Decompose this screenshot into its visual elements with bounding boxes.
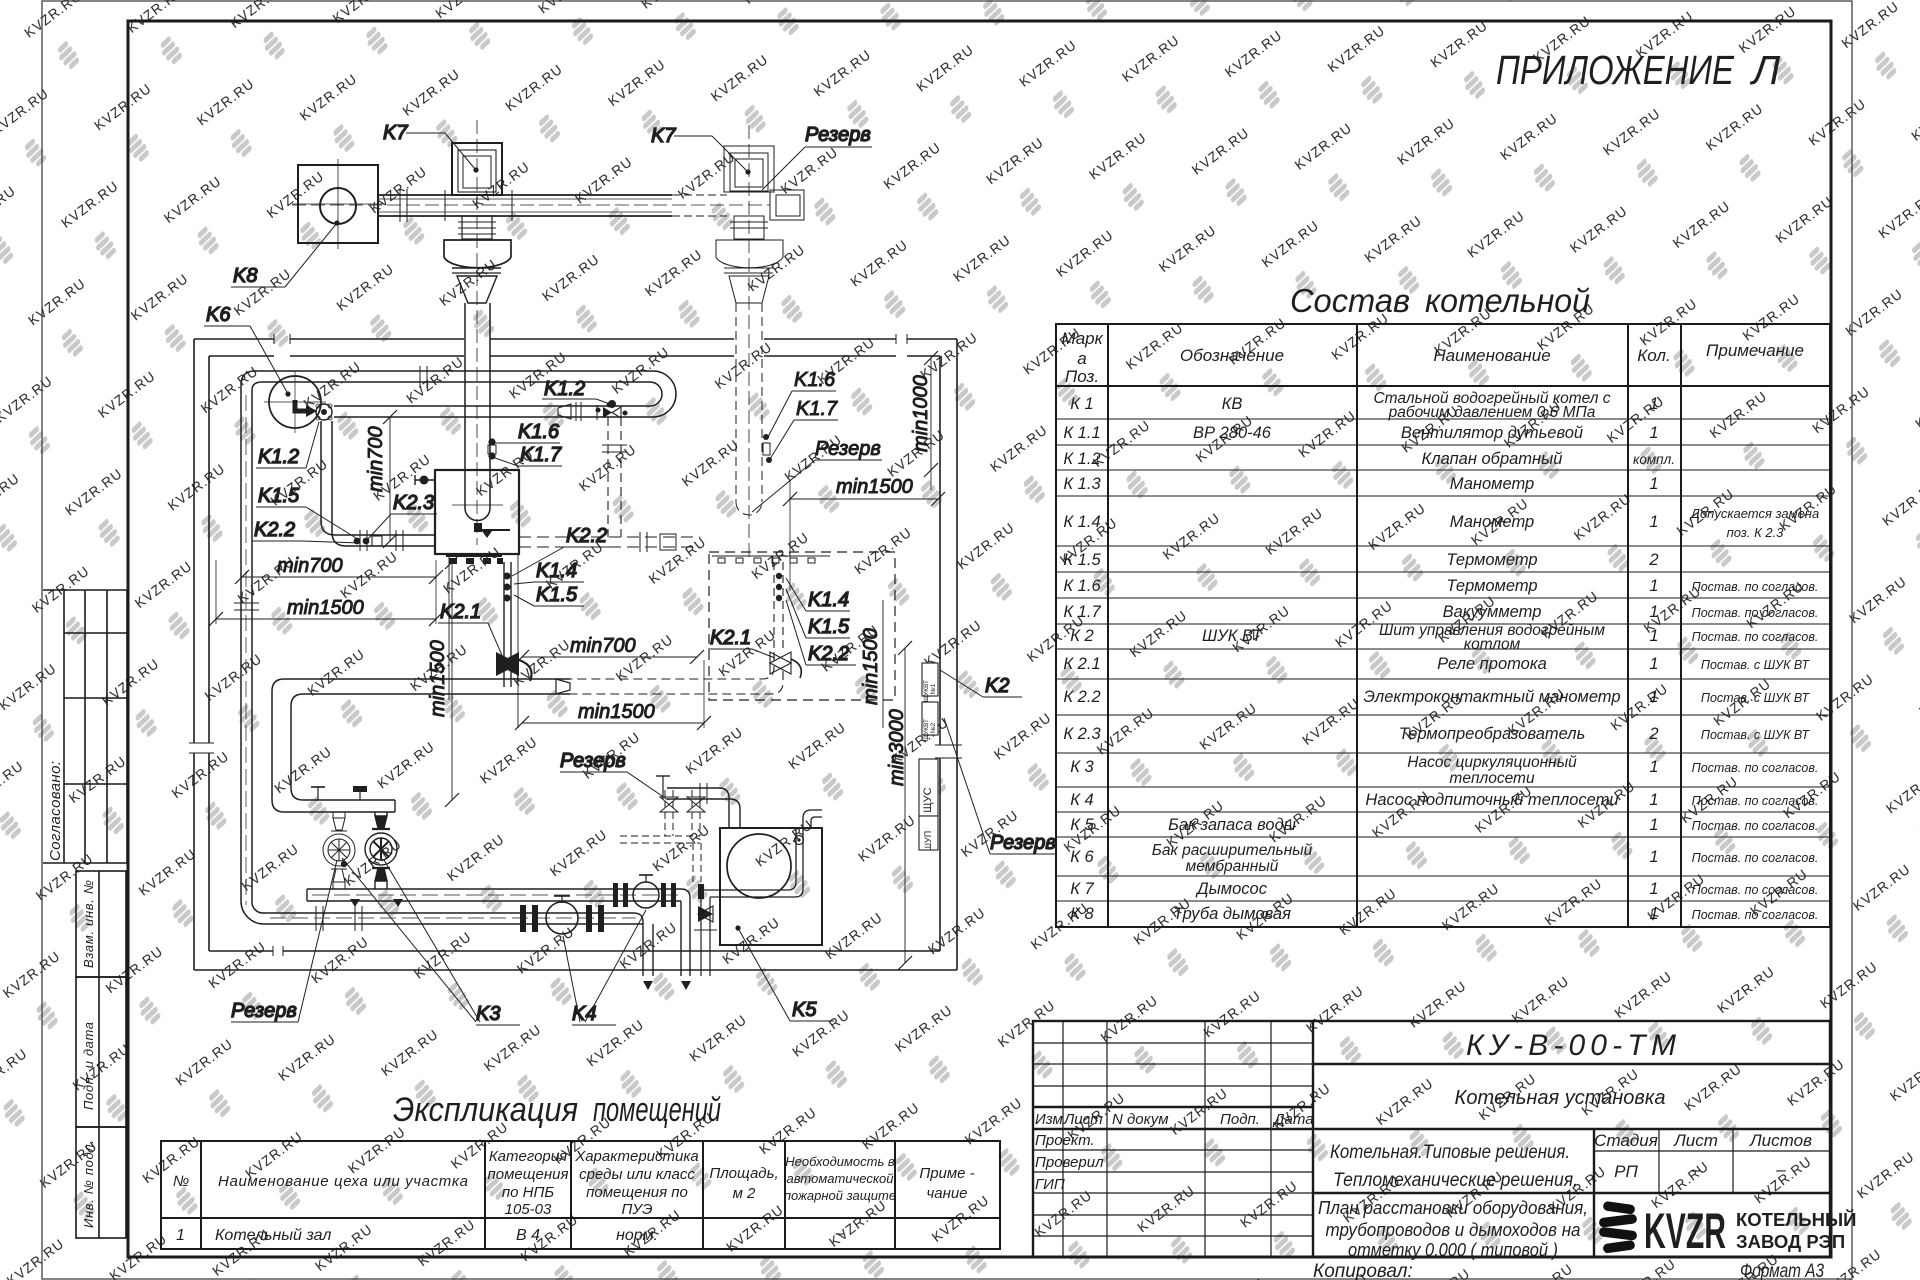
svg-text:Проект.: Проект. [1035, 1132, 1095, 1149]
svg-text:К 5: К 5 [1070, 816, 1094, 834]
svg-text:ГИП: ГИП [1035, 1176, 1065, 1193]
svg-text:К 2.3: К 2.3 [1063, 725, 1101, 743]
svg-text:K7: K7 [651, 125, 676, 147]
svg-text:2: 2 [1648, 551, 1658, 569]
svg-text:N докум: N докум [1112, 1111, 1169, 1128]
svg-text:1: 1 [1649, 655, 1658, 673]
svg-text:K2.1: K2.1 [710, 627, 751, 649]
svg-text:105-03: 105-03 [505, 1201, 552, 1218]
svg-text:Копировал:: Копировал: [1313, 1261, 1413, 1280]
svg-text:min1000: min1000 [910, 375, 932, 452]
svg-text:1: 1 [176, 1227, 185, 1244]
svg-text:К 1.5: К 1.5 [1063, 551, 1101, 569]
svg-text:теплосети: теплосети [1449, 770, 1535, 787]
svg-text:Тепломеханические решения.: Тепломеханические решения. [1333, 1170, 1578, 1191]
svg-text:Реле протока: Реле протока [1437, 655, 1547, 673]
svg-text:К 1.2: К 1.2 [1063, 450, 1100, 468]
svg-text:K2: K2 [985, 675, 1009, 697]
svg-text:К 8: К 8 [1070, 905, 1094, 923]
svg-text:мембранный: мембранный [1186, 858, 1279, 875]
svg-text:Кол.: Кол. [1637, 346, 1670, 365]
svg-text:Вентилятор дутьевой: Вентилятор дутьевой [1401, 424, 1583, 442]
svg-text:Труба дымовая: Труба дымовая [1173, 905, 1291, 923]
svg-text:трубопроводов и дымоходов на: трубопроводов и дымоходов на [1326, 1220, 1581, 1240]
svg-text:Термометр: Термометр [1446, 551, 1537, 569]
svg-text:Изм: Изм [1035, 1111, 1063, 1128]
svg-text:K1.7: K1.7 [796, 398, 838, 420]
svg-text:К 4: К 4 [1070, 791, 1094, 809]
svg-text:К 1.3: К 1.3 [1063, 475, 1101, 493]
svg-text:К 3: К 3 [1070, 758, 1094, 776]
svg-text:отметку 0,000 ( типовой ): отметку 0,000 ( типовой ) [1348, 1240, 1558, 1260]
svg-text:ЩУКВТ: ЩУКВТ [923, 719, 930, 741]
svg-text:№: № [173, 1173, 189, 1190]
svg-text:K1.4: K1.4 [808, 589, 849, 611]
svg-text:Допускается замена: Допускается замена [1689, 506, 1819, 521]
svg-text:Постав. по согласов.: Постав. по согласов. [1692, 794, 1819, 808]
svg-text:Инв. № подл.: Инв. № подл. [81, 1140, 96, 1228]
svg-text:ШУП: ШУП [923, 831, 933, 851]
svg-text:Наименование цеха или участка: Наименование цеха или участка [218, 1173, 468, 1190]
svg-text:ЩУС: ЩУС [922, 787, 934, 812]
svg-text:Резерв: Резерв [815, 438, 881, 460]
svg-text:1: 1 [1649, 627, 1658, 645]
svg-text:KVZR: KVZR [1644, 1203, 1726, 1259]
svg-text:Экспликация: Экспликация [393, 1091, 578, 1129]
svg-text:min1500: min1500 [427, 640, 449, 717]
svg-text:Взам. инв. №: Взам. инв. № [81, 880, 96, 968]
svg-text:Поз.: Поз. [1065, 367, 1099, 386]
svg-text:котельной: котельной [1425, 282, 1590, 319]
svg-text:K1.2: K1.2 [544, 378, 585, 400]
svg-text:а: а [1077, 349, 1086, 368]
svg-text:К 2: К 2 [1070, 627, 1094, 645]
svg-text:K2.1: K2.1 [440, 601, 481, 623]
svg-text:1: 1 [1649, 475, 1658, 493]
svg-text:Согласовано:: Согласовано: [47, 761, 64, 861]
svg-text:Манометр: Манометр [1450, 513, 1534, 531]
svg-text:рабочим давлением 0,6 МПа: рабочим давлением 0,6 МПа [1388, 404, 1596, 421]
svg-text:Площадь,: Площадь, [709, 1165, 778, 1182]
svg-text:min3000: min3000 [886, 709, 908, 786]
svg-text:2: 2 [1648, 725, 1658, 743]
svg-text:Термопреобразователь: Термопреобразователь [1399, 725, 1586, 743]
svg-text:Лист: Лист [1063, 1111, 1103, 1128]
svg-text:К 7: К 7 [1070, 880, 1094, 898]
svg-text:1: 1 [1649, 577, 1658, 595]
svg-text:Вакуумметр: Вакуумметр [1443, 603, 1542, 621]
svg-text:1: 1 [1649, 603, 1658, 621]
svg-text:м 2: м 2 [733, 1185, 756, 1202]
svg-text:РП: РП [1614, 1162, 1638, 1181]
svg-text:Насос подпиточный теплосети: Насос подпиточный теплосети [1365, 791, 1618, 809]
svg-text:K1.7: K1.7 [520, 444, 562, 466]
svg-text:Постав. по согласов.: Постав. по согласов. [1692, 883, 1819, 897]
svg-text:Проверил: Проверил [1035, 1154, 1104, 1171]
svg-text:Необходимость в: Необходимость в [785, 1154, 895, 1169]
svg-text:K1.5: K1.5 [808, 616, 850, 638]
svg-text:min1500: min1500 [860, 628, 882, 705]
svg-text:Постав. с ШУК ВТ: Постав. с ШУК ВТ [1701, 658, 1811, 672]
svg-text:K4: K4 [572, 1003, 596, 1025]
svg-text:среды или класс: среды или класс [579, 1166, 695, 1183]
svg-text:Бак расширительный: Бак расширительный [1152, 842, 1313, 859]
svg-text:К 1.1: К 1.1 [1063, 424, 1100, 442]
svg-text:min700: min700 [570, 635, 636, 657]
svg-text:Характеристика: Характеристика [574, 1148, 699, 1165]
svg-text:min1500: min1500 [578, 701, 655, 723]
svg-text:норм.: норм. [616, 1227, 658, 1244]
svg-text:K7: K7 [383, 122, 408, 144]
svg-text:Состав: Состав [1290, 282, 1410, 319]
svg-text:K2.2: K2.2 [808, 643, 849, 665]
svg-text:ПРИЛОЖЕНИЕ: ПРИЛОЖЕНИЕ [1496, 47, 1735, 93]
svg-text:Постав. по согласов.: Постав. по согласов. [1692, 851, 1819, 865]
svg-text:по НПБ: по НПБ [502, 1184, 554, 1201]
svg-text:–: – [1775, 1160, 1786, 1179]
svg-text:1: 1 [1649, 791, 1658, 809]
svg-text:1: 1 [1649, 880, 1658, 898]
svg-text:K1.6: K1.6 [518, 421, 560, 443]
svg-text:1: 1 [1649, 848, 1658, 866]
svg-text:Листов: Листов [1749, 1131, 1812, 1150]
svg-text:1: 1 [1649, 758, 1658, 776]
svg-text:Дымосос: Дымосос [1195, 880, 1268, 898]
svg-text:Котельный зал: Котельный зал [215, 1227, 331, 1244]
svg-text:помещений: помещений [593, 1091, 721, 1129]
svg-text:K1.6: K1.6 [794, 369, 836, 391]
svg-text:ВР 280-46: ВР 280-46 [1193, 424, 1272, 442]
svg-text:–: – [1690, 1160, 1701, 1179]
svg-text:автоматической: автоматической [787, 1171, 894, 1186]
svg-text:Резерв: Резерв [990, 832, 1056, 854]
svg-text:КВ: КВ [1222, 395, 1243, 413]
svg-text:–: – [835, 1225, 845, 1242]
svg-text:Насос циркуляционный: Насос циркуляционный [1407, 754, 1577, 771]
svg-text:Термометр: Термометр [1446, 577, 1537, 595]
svg-text:К 6: К 6 [1070, 848, 1094, 866]
svg-text:К 1: К 1 [1070, 395, 1094, 413]
svg-text:К 1.7: К 1.7 [1063, 603, 1101, 621]
svg-text:min1500: min1500 [836, 476, 913, 498]
svg-text:Приме -: Приме - [919, 1165, 974, 1182]
svg-text:Категория: Категория [489, 1148, 567, 1165]
svg-text:Формат А3: Формат А3 [1740, 1261, 1824, 1280]
svg-text:Манометр: Манометр [1450, 475, 1534, 493]
svg-text:К 1.4: К 1.4 [1063, 513, 1100, 531]
svg-text:пожарной защите: пожарной защите [784, 1188, 896, 1203]
svg-text:КУ-В-00-ТМ: КУ-В-00-ТМ [1466, 1029, 1676, 1062]
svg-text:Лист: Лист [1673, 1131, 1718, 1150]
svg-text:K2.3: K2.3 [393, 492, 434, 514]
svg-text:помещения по: помещения по [586, 1184, 688, 1201]
svg-text:min700: min700 [365, 426, 387, 492]
svg-text:1: 1 [1649, 513, 1658, 531]
svg-text:Примечание: Примечание [1706, 341, 1804, 360]
svg-text:Постав. с ШУК ВТ: Постав. с ШУК ВТ [1701, 728, 1811, 742]
svg-text:K8: K8 [233, 265, 257, 287]
svg-text:Резерв: Резерв [560, 750, 626, 772]
svg-text:Дата: Дата [1272, 1111, 1314, 1128]
svg-text:Котельная.Типовые решения.: Котельная.Типовые решения. [1330, 1142, 1570, 1163]
svg-text:К 1.6: К 1.6 [1063, 577, 1101, 595]
svg-text:Клапан обратный: Клапан обратный [1422, 450, 1563, 468]
svg-text:Постав. по согласов.: Постав. по согласов. [1692, 606, 1819, 620]
svg-text:K1.2: K1.2 [258, 446, 299, 468]
svg-text:Постав. по согласов.: Постав. по согласов. [1692, 580, 1819, 594]
svg-text:Котельная установка: Котельная установка [1455, 1087, 1666, 1109]
svg-text:К 2.1: К 2.1 [1063, 655, 1100, 673]
svg-text:K2.2: K2.2 [566, 525, 607, 547]
svg-text:Резерв: Резерв [231, 1000, 297, 1022]
svg-text:Подп.: Подп. [1220, 1111, 1260, 1128]
svg-text:компл.: компл. [1633, 452, 1675, 467]
svg-text:поз. К 2.3: поз. К 2.3 [1727, 525, 1785, 540]
svg-text:К 2.2: К 2.2 [1063, 688, 1100, 706]
svg-text:Обозначение: Обозначение [1180, 346, 1284, 365]
svg-text:ШУК ВТ: ШУК ВТ [1202, 627, 1264, 645]
svg-text:Постав. по согласов.: Постав. по согласов. [1692, 908, 1819, 922]
svg-text:№2: №2 [930, 722, 937, 733]
svg-text:Подп. и дата: Подп. и дата [81, 1022, 96, 1110]
svg-text:Постав. по согласов.: Постав. по согласов. [1692, 630, 1819, 644]
svg-text:Постав. по согласов.: Постав. по согласов. [1692, 819, 1819, 833]
svg-text:ЗАВОД РЭП: ЗАВОД РЭП [1736, 1231, 1845, 1252]
svg-text:Постав. по согласов.: Постав. по согласов. [1692, 761, 1819, 775]
svg-text:Марк: Марк [1061, 329, 1103, 348]
svg-text:1: 1 [1649, 905, 1658, 923]
svg-text:Резерв: Резерв [805, 124, 871, 146]
svg-text:1: 1 [1649, 688, 1658, 706]
svg-text:K5: K5 [792, 999, 817, 1021]
svg-text:помещения: помещения [488, 1166, 569, 1183]
svg-text:Постав. с ШУК ВТ: Постав. с ШУК ВТ [1701, 691, 1811, 705]
svg-text:min1500: min1500 [287, 597, 364, 619]
svg-text:K1.5: K1.5 [258, 485, 300, 507]
svg-text:K2.2: K2.2 [254, 519, 295, 541]
svg-text:чание: чание [926, 1185, 967, 1202]
svg-text:КОТЕЛЬНЫЙ: КОТЕЛЬНЫЙ [1736, 1209, 1856, 1230]
svg-text:min700: min700 [277, 555, 343, 577]
svg-text:В 4: В 4 [516, 1227, 540, 1244]
svg-text:Электроконтактный манометр: Электроконтактный манометр [1363, 688, 1620, 706]
svg-text:№1: №1 [930, 683, 937, 694]
svg-text:ПУЭ: ПУЭ [621, 1201, 652, 1218]
svg-text:Стадия: Стадия [1594, 1131, 1658, 1150]
svg-text:1: 1 [1649, 395, 1658, 413]
svg-text:K1.4: K1.4 [536, 560, 577, 582]
svg-text:K6: K6 [206, 304, 231, 326]
svg-text:План расстановки оборудования,: План расстановки оборудования, [1318, 1198, 1588, 1218]
svg-text:Л: Л [1749, 47, 1781, 93]
svg-text:Бак запаса воды: Бак запаса воды [1168, 816, 1296, 834]
svg-text:1: 1 [1649, 424, 1658, 442]
svg-text:1: 1 [1649, 816, 1658, 834]
svg-text:Наименование: Наименование [1433, 346, 1550, 365]
svg-text:котлом: котлом [1464, 636, 1521, 653]
svg-text:ЩУКВТ: ЩУКВТ [923, 680, 930, 702]
svg-text:K1.5: K1.5 [536, 584, 578, 606]
